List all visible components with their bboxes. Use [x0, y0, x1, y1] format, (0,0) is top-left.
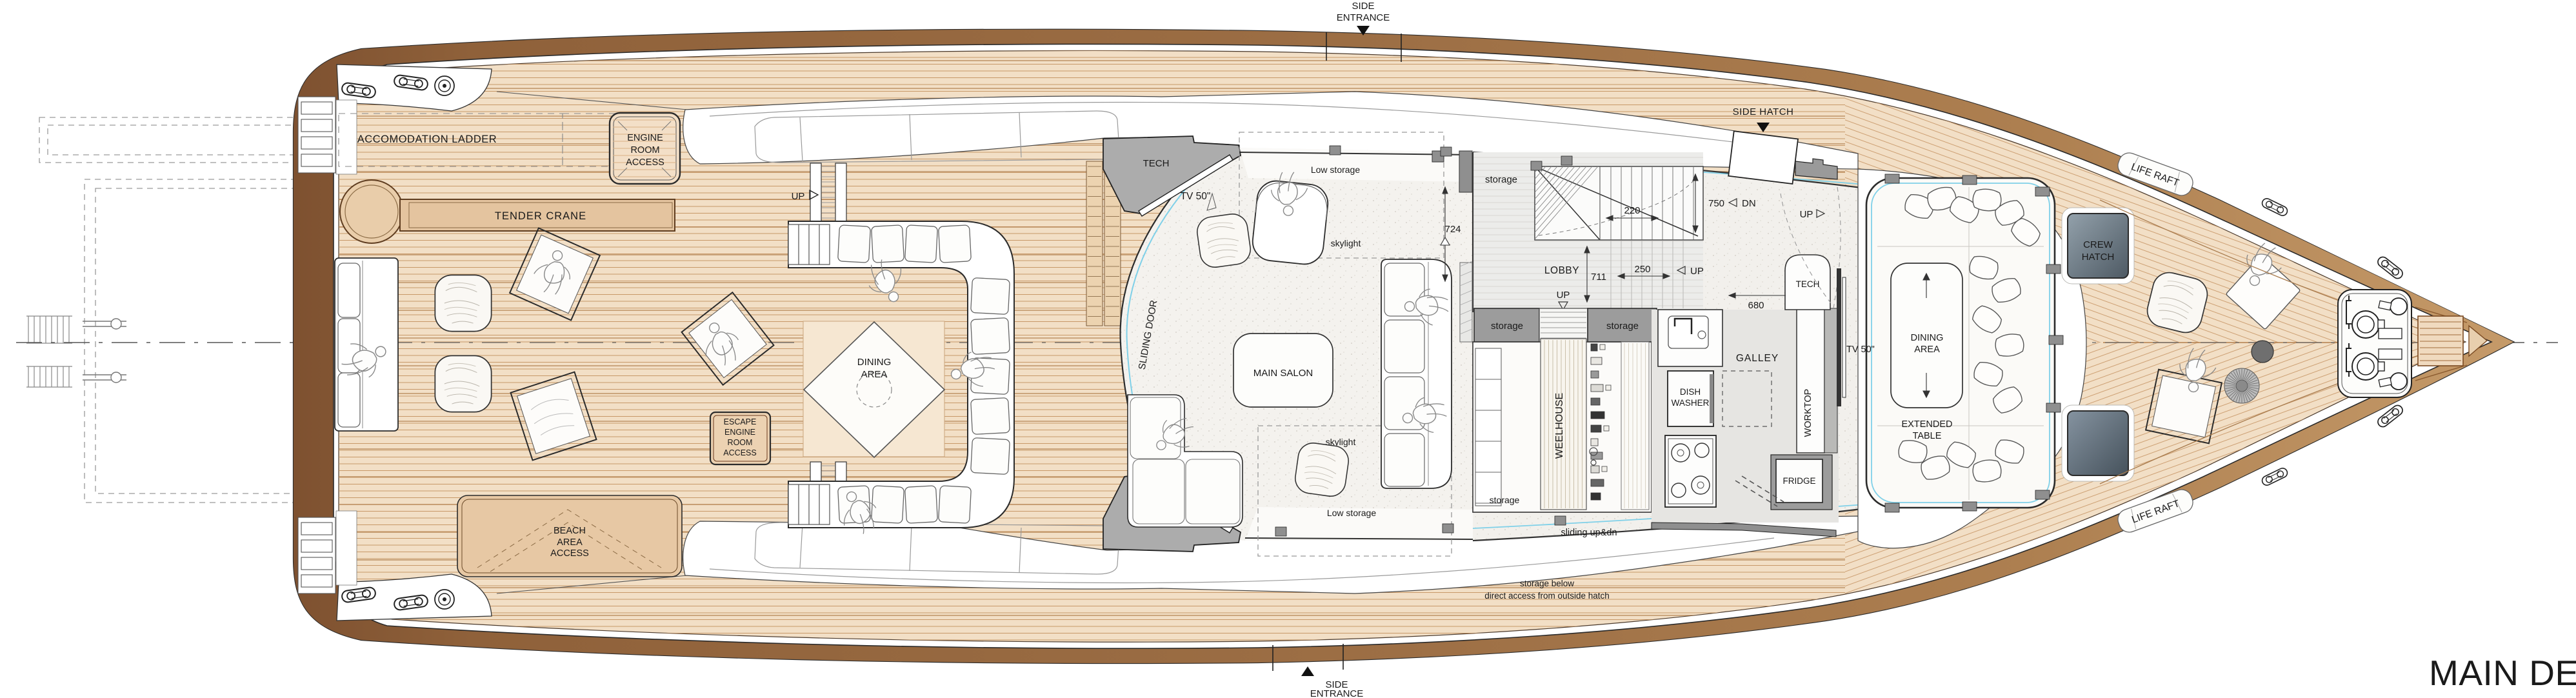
svg-text:SIDE: SIDE [1352, 1, 1374, 12]
svg-text:sliding up&dn: sliding up&dn [1561, 528, 1617, 538]
svg-text:ENGINE: ENGINE [627, 133, 663, 143]
svg-text:AREA: AREA [861, 369, 888, 380]
svg-text:ROOM: ROOM [728, 438, 753, 447]
svg-text:ACCESS: ACCESS [723, 448, 756, 457]
svg-text:AREA: AREA [557, 537, 583, 548]
svg-text:LOBBY: LOBBY [1544, 265, 1579, 276]
svg-text:EXTENDED: EXTENDED [1902, 419, 1953, 430]
svg-text:750: 750 [1708, 198, 1724, 209]
svg-text:DN: DN [1742, 198, 1756, 209]
svg-text:HATCH: HATCH [2082, 252, 2115, 263]
svg-text:220: 220 [1624, 205, 1640, 216]
svg-text:UP: UP [1557, 290, 1570, 301]
svg-text:TV 50": TV 50" [1181, 191, 1211, 202]
svg-text:ENTRANCE: ENTRANCE [1337, 12, 1390, 23]
svg-text:ROOM: ROOM [630, 145, 659, 155]
svg-text:UP: UP [792, 191, 805, 202]
svg-text:Low storage: Low storage [1311, 165, 1360, 175]
svg-text:SIDE HATCH: SIDE HATCH [1733, 106, 1794, 117]
svg-text:ENGINE: ENGINE [724, 428, 755, 437]
svg-text:CREW: CREW [2083, 239, 2113, 250]
svg-text:storage below: storage below [1520, 579, 1574, 588]
svg-text:MAIN SALON: MAIN SALON [1253, 368, 1313, 379]
svg-text:skylight: skylight [1331, 238, 1361, 248]
svg-text:UP: UP [1800, 209, 1813, 220]
svg-text:DISH: DISH [1680, 387, 1701, 397]
svg-text:TV 50": TV 50" [1846, 344, 1875, 355]
svg-text:DINING: DINING [857, 357, 892, 368]
svg-text:ACCESS: ACCESS [626, 157, 664, 168]
svg-text:direct access from outside hat: direct access from outside hatch [1484, 591, 1610, 601]
svg-text:ESCAPE: ESCAPE [724, 417, 757, 426]
svg-text:ENTRANCE: ENTRANCE [1310, 688, 1364, 698]
svg-text:storage: storage [1490, 495, 1520, 505]
svg-text:UP: UP [1690, 266, 1704, 277]
svg-text:WASHER: WASHER [1672, 398, 1710, 408]
svg-text:storage: storage [1606, 321, 1639, 332]
svg-text:TECH: TECH [1796, 279, 1820, 289]
svg-text:TENDER CRANE: TENDER CRANE [495, 210, 586, 222]
svg-text:TECH: TECH [1143, 158, 1170, 169]
svg-text:680: 680 [1748, 300, 1764, 311]
svg-text:MAIN DECK: MAIN DECK [2429, 653, 2576, 693]
svg-text:AREA: AREA [1914, 344, 1940, 355]
svg-text:WORKTOP: WORKTOP [1803, 389, 1813, 437]
svg-text:FRIDGE: FRIDGE [1782, 476, 1815, 486]
svg-text:724: 724 [1444, 224, 1461, 235]
svg-text:BEACH: BEACH [554, 526, 586, 536]
svg-text:storage: storage [1485, 174, 1517, 185]
svg-text:WEELHOUSE: WEELHOUSE [1554, 393, 1565, 459]
svg-text:storage: storage [1491, 321, 1523, 332]
svg-text:GALLEY: GALLEY [1736, 353, 1779, 364]
svg-text:250: 250 [1634, 264, 1650, 275]
svg-text:DINING: DINING [1911, 333, 1944, 343]
svg-text:ACCESS: ACCESS [550, 548, 589, 559]
svg-text:ACCOMODATION LADDER: ACCOMODATION LADDER [357, 134, 497, 145]
svg-text:TABLE: TABLE [1913, 431, 1942, 441]
svg-text:711: 711 [1591, 272, 1606, 283]
svg-text:Low storage: Low storage [1327, 508, 1376, 518]
